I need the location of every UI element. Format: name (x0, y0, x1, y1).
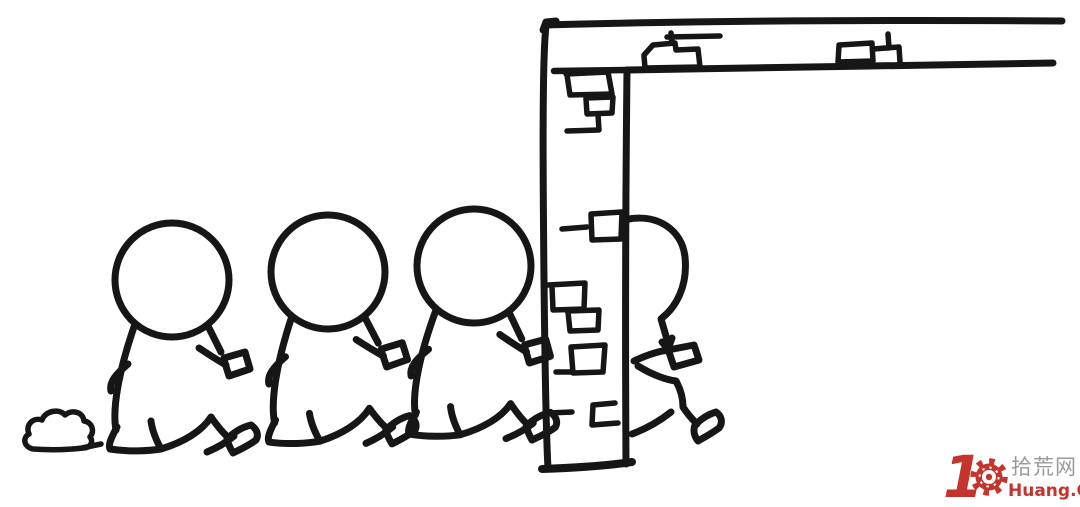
brick (566, 72, 612, 95)
ceiling-beam (545, 20, 1062, 70)
brick (567, 115, 599, 131)
wall-column (542, 21, 632, 469)
front-arm (634, 350, 669, 361)
hand (668, 345, 699, 367)
walking-figure-3 (408, 208, 560, 441)
brick (592, 403, 618, 425)
brick (571, 345, 605, 373)
brick-line (873, 34, 900, 62)
walking-figure-2 (264, 214, 416, 447)
cartoon-drawing: 1 拾荒网 Huang.CN (0, 0, 1080, 507)
brick-wall-structure (542, 20, 1062, 469)
wall-right-edge (626, 70, 627, 464)
figure-through-wall (629, 218, 721, 441)
wall-bottom-edge (542, 462, 632, 469)
brick-line (548, 412, 572, 413)
site-name-cn: 拾荒网 (1011, 455, 1077, 479)
half-head (629, 218, 685, 318)
dust-cloud-tail (82, 444, 101, 448)
front-foot (694, 412, 721, 441)
brick (591, 212, 622, 240)
site-name-en: Huang.CN (1008, 481, 1080, 501)
brick (548, 283, 585, 310)
wall-left-edge (543, 26, 548, 468)
walking-figure-1 (109, 223, 257, 453)
dust-puff (25, 411, 101, 450)
body-bottom-line (632, 412, 671, 434)
brick-marks (548, 33, 900, 425)
brick-line (562, 227, 587, 229)
dust-cloud-outline (25, 411, 93, 450)
body-front-line (638, 366, 683, 407)
beam-top-line (545, 20, 1062, 25)
brick (644, 43, 700, 68)
brick (586, 97, 613, 114)
brick (838, 43, 873, 62)
watermark: 1 拾荒网 Huang.CN (943, 443, 1080, 507)
illustration-canvas: 1 拾荒网 Huang.CN (0, 0, 1080, 507)
brick (567, 310, 599, 331)
